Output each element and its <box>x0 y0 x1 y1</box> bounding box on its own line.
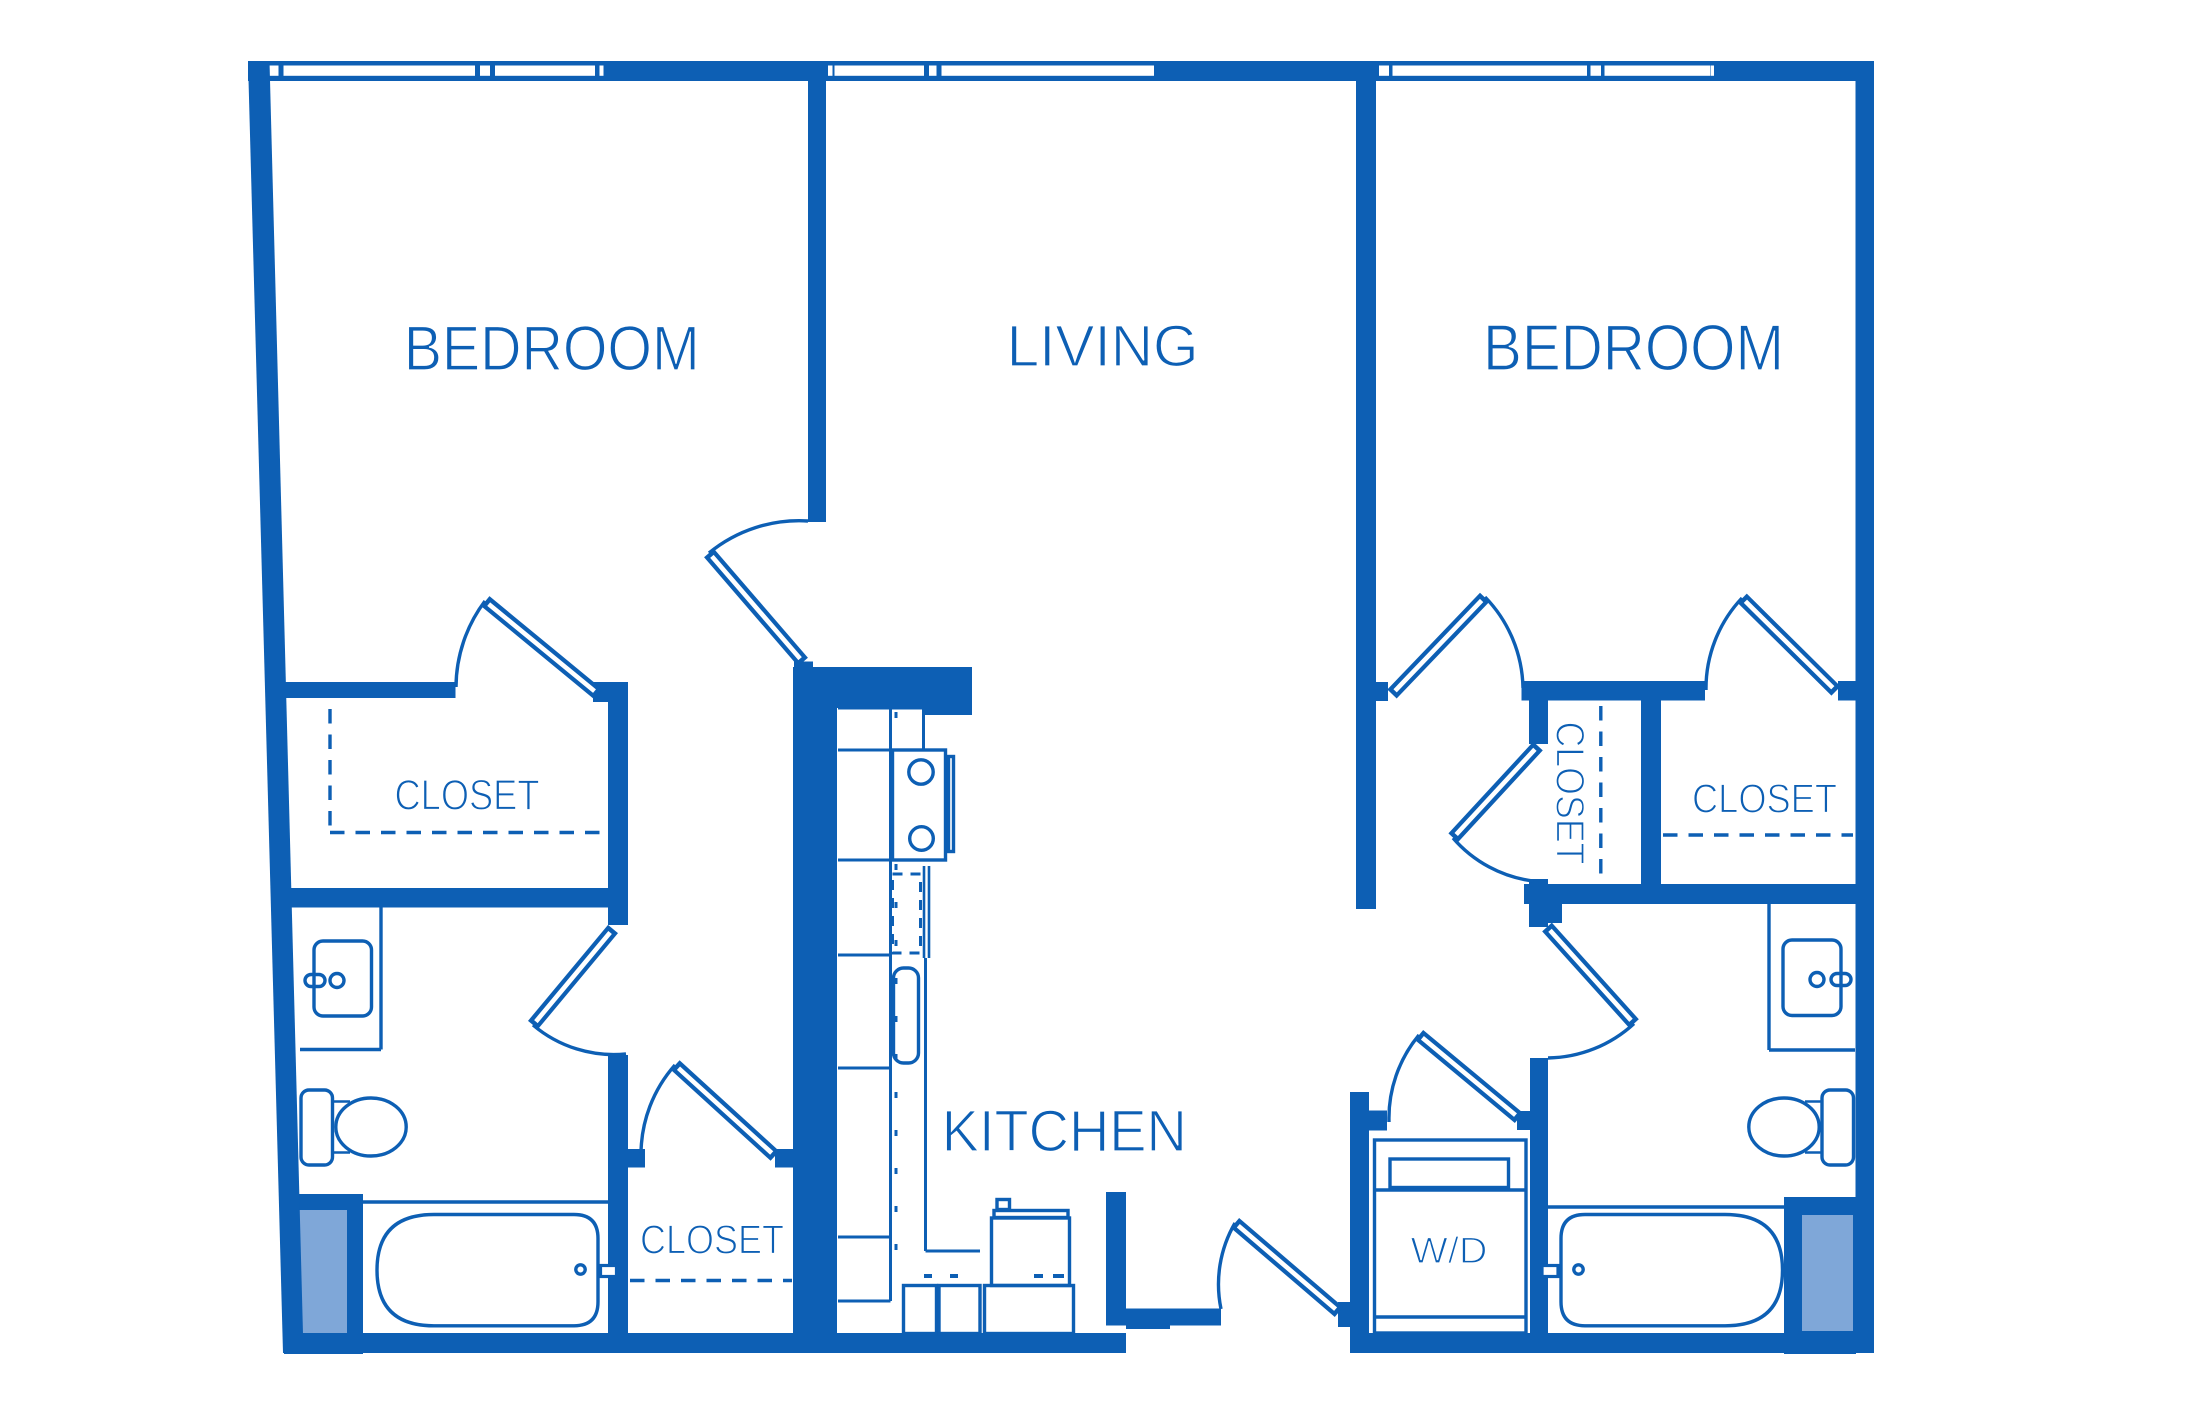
svg-text:CLOSET: CLOSET <box>640 1217 784 1263</box>
svg-text:CLOSET: CLOSET <box>1548 722 1592 865</box>
svg-text:CLOSET: CLOSET <box>395 772 540 820</box>
svg-text:W/D: W/D <box>1411 1230 1488 1271</box>
svg-text:BEDROOM: BEDROOM <box>404 314 700 384</box>
svg-text:BEDROOM: BEDROOM <box>1483 311 1784 384</box>
svg-text:LIVING: LIVING <box>1007 314 1199 379</box>
svg-text:KITCHEN: KITCHEN <box>942 1099 1187 1164</box>
svg-text:CLOSET: CLOSET <box>1692 776 1837 822</box>
